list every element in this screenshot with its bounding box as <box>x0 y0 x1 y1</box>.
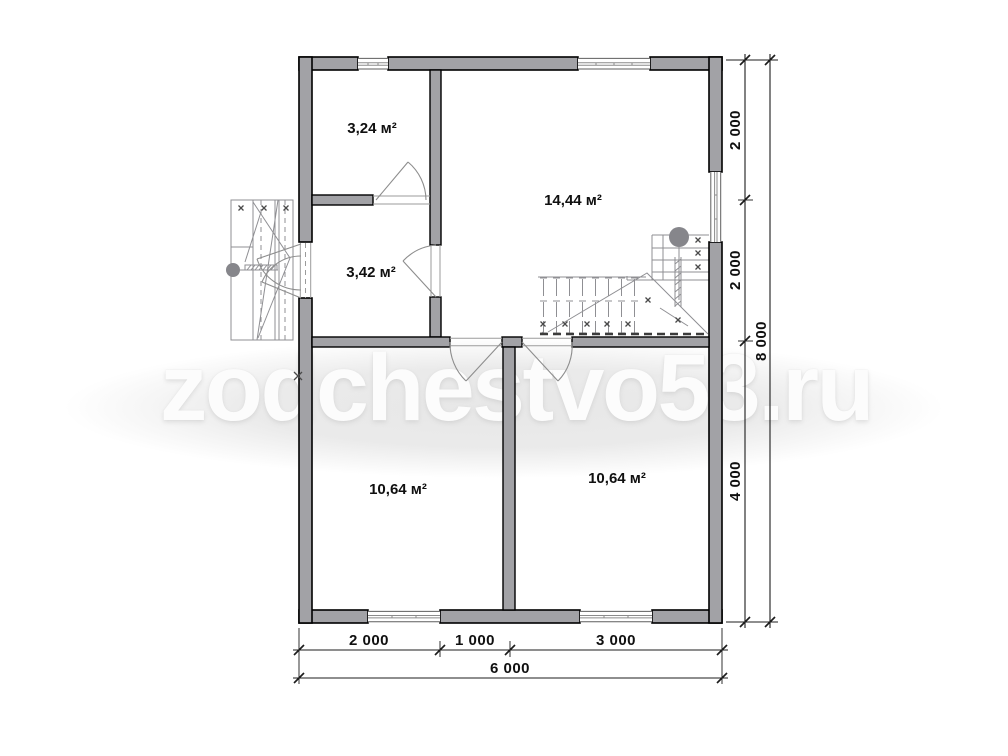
window-top-right <box>578 58 650 69</box>
dim-label-right-2: 4 000 <box>727 461 744 501</box>
area-label-room-324: 3,24 м² <box>347 120 396 137</box>
area-label-entry: 3,42 м² <box>346 264 395 281</box>
dim-label-bottom-2: 3 000 <box>596 632 636 649</box>
staircase <box>538 227 709 334</box>
wall-right-1 <box>709 57 722 172</box>
wall-middle-2 <box>572 337 709 347</box>
porch-post <box>226 263 240 277</box>
wall-bottom-2 <box>440 610 580 623</box>
stair-post <box>669 227 689 247</box>
stair-hatch <box>675 257 681 307</box>
wall-left-1 <box>299 57 312 242</box>
dim-label-bottom-total: 6 000 <box>490 660 530 677</box>
area-label-living: 14,44 м² <box>544 192 602 209</box>
door-swing-room-324 <box>376 162 426 200</box>
wall-middle-1 <box>312 337 450 347</box>
wall-left-2 <box>299 298 312 623</box>
wall-right-2 <box>709 242 722 623</box>
door-swing-bottom-left <box>450 342 502 381</box>
dim-label-right-total: 8 000 <box>753 321 770 361</box>
dimension-right: 2 000 2 000 4 000 8 000 <box>726 54 778 628</box>
area-label-bottom-right: 10,64 м² <box>588 470 646 487</box>
walls <box>299 57 722 623</box>
wall-middle-pier <box>502 337 522 347</box>
dim-label-bottom-1: 1 000 <box>455 632 495 649</box>
window-bottom-left <box>368 611 440 622</box>
dim-label-bottom-0: 2 000 <box>349 632 389 649</box>
area-label-bottom-left: 10,64 м² <box>369 481 427 498</box>
stair-treads <box>540 278 638 333</box>
wall-interior-room324 <box>312 195 373 205</box>
wall-interior-vertical-bottom <box>503 347 515 610</box>
floor-plan-page: zodchestvo53.ru <box>0 0 1008 756</box>
dim-label-right-1: 2 000 <box>727 250 744 290</box>
dimension-bottom: 2 000 1 000 3 000 6 000 <box>293 628 728 684</box>
window-bottom-right <box>580 611 652 622</box>
floor-plan-drawing: 3,24 м² 14,44 м² 3,42 м² 10,64 м² 10,64 … <box>0 0 1008 756</box>
entrance-porch <box>226 200 293 340</box>
window-right <box>710 172 721 242</box>
area-labels: 3,24 м² 14,44 м² 3,42 м² 10,64 м² 10,64 … <box>346 120 646 498</box>
window-top-left <box>358 58 388 69</box>
wall-top-2 <box>388 57 578 70</box>
wall-interior-vertical-top-1 <box>430 70 441 245</box>
porch-x-marks <box>239 206 289 211</box>
wall-interior-vertical-top-2 <box>430 297 441 337</box>
stair-x-marks <box>541 238 701 327</box>
door-swing-bottom-right <box>522 342 572 381</box>
dim-label-right-0: 2 000 <box>727 110 744 150</box>
